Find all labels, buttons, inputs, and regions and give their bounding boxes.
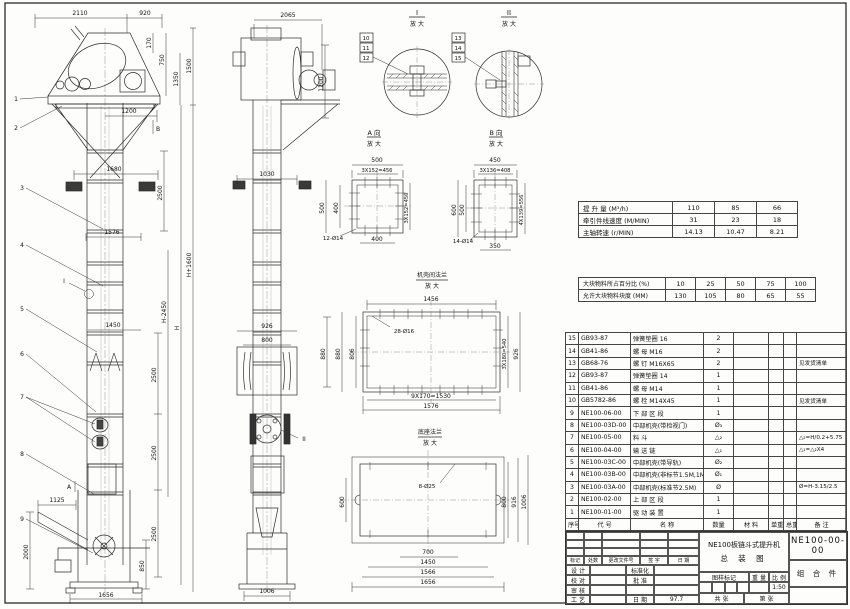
dim-label: 12-Ø14: [323, 235, 344, 242]
bolt-ticks: [349, 177, 406, 236]
detail-subtitle: 放 大: [367, 140, 381, 148]
assembly-type: 组 合 件: [789, 560, 847, 587]
dim-label: 800: [261, 337, 273, 344]
sig-label: 日 期: [626, 595, 654, 604]
table-row: 牵引件线速度 (M/MIN)312318: [579, 214, 798, 226]
dim-label: 1125: [49, 497, 64, 504]
date-value: 97.7: [654, 595, 699, 604]
detail-i: [360, 17, 452, 118]
lump-size-table: 大块物料所占百分比 (%)10255075100 允许大块物料块度 (MM)13…: [578, 277, 816, 302]
dim-label: 916: [511, 496, 518, 508]
dim-label: 8-Ø25: [419, 483, 436, 490]
rev-header: 签 字: [640, 556, 668, 565]
dim-label: 600: [339, 496, 346, 508]
scale-label: 比 例: [769, 572, 789, 582]
dim-label: 1576: [104, 229, 119, 236]
buckets: [92, 418, 108, 449]
dim-label: H+1600: [186, 252, 193, 277]
bom-header-cell: 总重: [784, 518, 797, 530]
weight-value: [749, 582, 769, 593]
bom-row: 3NE100-03A-00中部机壳(标准节2.5M) Ø Ø=H-3.15/2.…: [566, 481, 847, 493]
callout-number: 7: [20, 394, 24, 401]
callout-number: 13: [455, 36, 462, 42]
chain-wheel: [250, 414, 290, 444]
drawing-sheet: 1 2 3 4 5 6 7 8 9 2110 920 170 750 1350 …: [0, 0, 850, 609]
parts-list: 15GB93-87弹簧垫圈 16 2 14GB41-86螺 母 M16 2 13…: [565, 332, 847, 531]
sig-field[interactable]: [654, 565, 699, 575]
callout-number: 15: [455, 56, 462, 62]
dim-label: 1656: [98, 592, 113, 599]
callout-number: 4: [20, 242, 24, 249]
dim-label: 400: [333, 202, 340, 214]
callout-number: 14: [455, 46, 462, 52]
dim-label: 350: [489, 243, 501, 250]
callout-number: 3: [20, 185, 24, 192]
wall-bracket: [139, 182, 155, 191]
bom-row: 4NE100-03B-00中部机壳(非标节1.5M,1M) Ø₁: [566, 469, 847, 481]
table-row: 提 升 量 (M³/h)1108566: [579, 202, 798, 214]
dim-label: H-2450: [161, 301, 168, 323]
dim-label: 1656: [420, 579, 435, 586]
dim-label: 2065: [280, 12, 295, 19]
dim-label: 1450: [420, 559, 435, 566]
bom-header-cell: 材 料: [734, 518, 769, 530]
rev-header: 标记: [566, 556, 584, 565]
drawing-number: NE100-00-00: [789, 532, 847, 560]
bom-row: 5NE100-03C-00中部机壳(带导轨) Ø₂: [566, 456, 847, 468]
view-arrow-label: A: [67, 484, 72, 491]
drawing-title: NE100板链斗式提升机: [708, 539, 780, 552]
dim-label: 3X136=408: [479, 168, 510, 174]
bom-row: 13GB68-76螺 钉 M16X65 2 见发货清单: [566, 357, 847, 369]
bom-row: 1NE100-01-00驱 动 装 置 1: [566, 506, 847, 518]
callout-number: 9: [20, 516, 24, 523]
front-view: [20, 14, 196, 604]
sheet-number: 第 张: [744, 593, 789, 604]
wall-bracket: [66, 182, 82, 191]
dim-label: 920: [139, 10, 151, 17]
bom-header-cell: 数量: [704, 518, 734, 530]
dim-label: 800: [501, 496, 508, 508]
bom-header-cell: 代 号: [579, 518, 631, 530]
sig-label: 批 准: [626, 575, 654, 585]
detail-subtitle: 放 大: [425, 282, 439, 290]
view-arrow-label: B: [156, 126, 160, 133]
drawing-subtitle: 总 装 图: [720, 552, 767, 565]
callout-number: 6: [20, 351, 24, 358]
bom-header-row: 序号 代 号 名 称 数量 材 料 单重 总重 备 注: [566, 518, 847, 530]
bolt-ticks: [471, 177, 520, 240]
detail-title: II: [507, 9, 511, 17]
discharge-spout: [71, 26, 84, 40]
callout-number: 1: [14, 96, 18, 103]
callout-number: 12: [363, 56, 370, 62]
bom-header-cell: 备 注: [797, 518, 847, 530]
dim-label: 1006: [521, 494, 528, 509]
side-door: [251, 456, 284, 493]
bom-header-cell: 名 称: [631, 518, 704, 530]
bom-row: 2NE100-02-00上 部 区 段 1: [566, 494, 847, 506]
dim-label: 500: [371, 157, 383, 164]
bom-row: 11GB41-86螺 母 M14 1: [566, 382, 847, 394]
bom-row: 12GB93-87弹簧垫圈 14 1: [566, 370, 847, 382]
callout-number: 2: [14, 125, 18, 132]
dim-label: 1030: [259, 171, 274, 178]
wall-bracket: [233, 181, 245, 189]
dim-label: 1200: [318, 76, 325, 91]
capacity-table: 提 升 量 (M³/h)1108566 牵引件线速度 (M/MIN)312318…: [578, 201, 798, 238]
mark-label: 图样标记: [699, 572, 749, 582]
table-row: 主轴转速 (r/MIN)14.1310.478.21: [579, 226, 798, 238]
detail-subtitle: 放 大: [423, 439, 437, 447]
dim-label: 3X152=456: [404, 192, 410, 223]
dim-label: 3X152=456: [361, 168, 392, 174]
bom-row: 7NE100-05-00料 斗 △₂ △₂=H/0.2+5.75: [566, 432, 847, 444]
inlet-chute: [38, 512, 88, 550]
sig-field[interactable]: [590, 565, 626, 575]
scale-value: 1:50: [769, 582, 789, 593]
detail-title: B 向: [489, 128, 502, 137]
dim-label: 1350: [173, 71, 180, 86]
bom-row: 6NE100-04-00输 送 链 △₁ △₁=△₂X4: [566, 444, 847, 456]
rev-header: 处数: [584, 556, 602, 565]
front-boot: [55, 490, 150, 593]
callout-number: 5: [20, 306, 24, 313]
detail-title: 机壳间法兰: [417, 271, 447, 279]
dim-label: 500: [319, 202, 326, 214]
dim-label: 1566: [420, 569, 435, 576]
table-row: 允许大块物料块度 (MM)130105806555: [579, 290, 816, 302]
sig-label: 校 对: [566, 575, 590, 585]
detail-b: [458, 137, 525, 250]
dim-label: 1200: [121, 108, 136, 115]
sheet-total: 共 张: [699, 593, 744, 604]
sig-field[interactable]: [590, 585, 626, 595]
detail-title: A 向: [367, 128, 380, 137]
dim-label: 2110: [72, 10, 87, 17]
dim-label: 880: [335, 348, 342, 360]
callout-number: 10: [363, 36, 370, 42]
sig-label: 工 艺: [566, 595, 590, 604]
dim-label: 4X139=556: [519, 194, 525, 225]
dim-label: 2500: [157, 185, 164, 200]
dim-label: 880: [320, 348, 327, 360]
sig-field[interactable]: [590, 575, 626, 585]
weight-label: 重 量: [749, 572, 769, 582]
bom-row: 9NE100-06-00下 部 区 段 1: [566, 407, 847, 419]
bom-row: 14GB41-86螺 母 M16 2: [566, 345, 847, 357]
dim-label: 2000: [23, 544, 30, 559]
bom-row: 15GB93-87弹簧垫圈 16 2: [566, 333, 847, 345]
bom-row: 8NE100-03D-00中部机壳(带检视门) Ø₃: [566, 419, 847, 431]
callout-number: 8: [20, 451, 24, 458]
dim-label: 9X170=1530: [411, 393, 451, 400]
dim-label: 2500: [151, 445, 158, 460]
dim-label: 2500: [151, 526, 158, 541]
detail-ii: [452, 17, 544, 119]
dim-label: 850: [139, 560, 146, 572]
dim-label: H: [174, 326, 181, 331]
dim-label: 1006: [259, 588, 274, 595]
rev-header: 更改文件号: [602, 556, 640, 565]
detail-subtitle: 放 大: [489, 140, 503, 148]
dim-label: 806: [349, 348, 356, 360]
dim-label: 2500: [151, 367, 158, 382]
sig-label: 设 计: [566, 565, 590, 575]
dim-label: 1450: [105, 322, 120, 329]
wall-bracket: [299, 181, 311, 189]
dim-label: 750: [159, 54, 166, 66]
dim-label: 926: [513, 348, 520, 360]
detail-subtitle: 放 大: [502, 20, 516, 28]
side-dims: [237, 20, 331, 601]
callout-number: 11: [363, 46, 370, 52]
detail-marker: II: [302, 436, 306, 443]
dim-label: 400: [371, 236, 383, 243]
dim-label: 1680: [106, 166, 121, 173]
detail-title: I: [416, 9, 418, 17]
dim-label: 926: [261, 323, 273, 330]
table-row: 大块物料所占百分比 (%)10255075100: [579, 278, 816, 290]
dim-label: 600: [451, 204, 458, 216]
detail-a: [326, 137, 411, 243]
dim-label: 28-Ø16: [394, 328, 415, 335]
dim-label: 500: [459, 204, 466, 216]
dim-label: 170: [146, 37, 153, 49]
bom-row: 10GB5782-86螺 栓 M14X45 1 见发货清单: [566, 394, 847, 406]
dim-label: 1456: [423, 296, 438, 303]
sig-label: 审 核: [566, 585, 590, 595]
motor-platform: [281, 100, 340, 150]
bom-header-cell: 序号: [566, 518, 579, 530]
detail-marker: I: [63, 278, 65, 285]
sig-label: 标准化: [626, 565, 654, 575]
dim-label: 450: [489, 157, 501, 164]
bom-header-cell: 单重: [769, 518, 784, 530]
rev-header: 日 期: [668, 556, 699, 565]
front-head: [48, 26, 160, 178]
side-view: [233, 20, 340, 601]
sig-field[interactable]: [590, 595, 626, 604]
dim-label: 1576: [423, 403, 438, 410]
detail-subtitle: 放 大: [410, 20, 424, 28]
detail-title: 底座法兰: [418, 428, 442, 436]
front-dims: [20, 14, 196, 604]
dim-label: 14-Ø14: [453, 238, 474, 245]
sig-field[interactable]: [654, 575, 699, 585]
inspection-door: [88, 464, 116, 494]
dim-label: 3X180=540: [502, 338, 508, 369]
title-block: 标记 处数 更改文件号 签 字 日 期 设 计 标准化 校 对 批 准 审 核 …: [565, 531, 848, 605]
dim-label: 700: [422, 549, 434, 556]
dim-label: 1500: [186, 58, 193, 73]
service-platform: [55, 548, 150, 572]
